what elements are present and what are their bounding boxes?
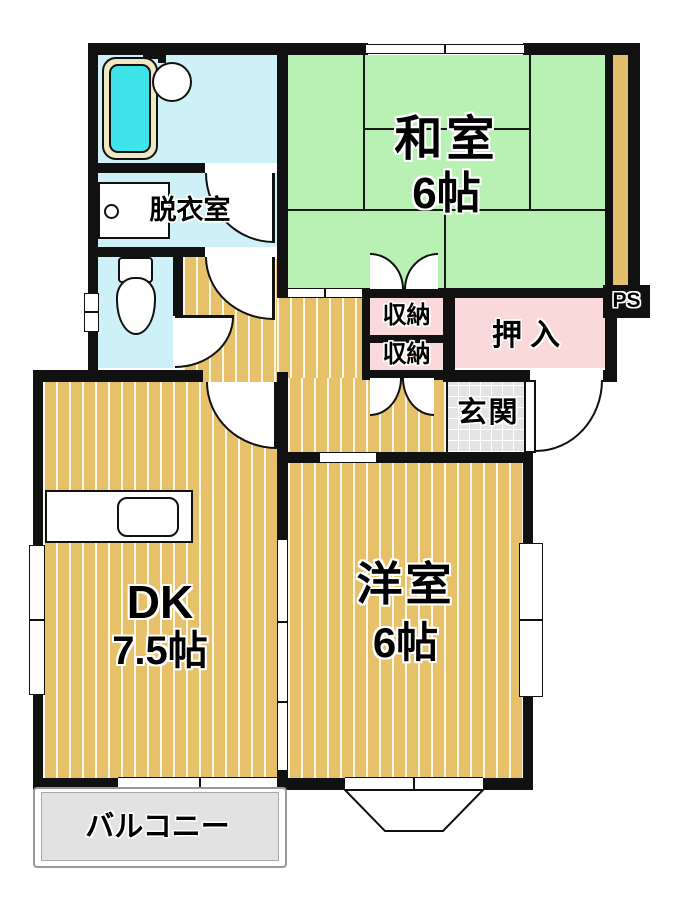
- wall: [33, 370, 203, 382]
- pipe-space-box: PS: [603, 285, 650, 318]
- faucet-icon: [143, 51, 159, 59]
- wall: [375, 452, 533, 463]
- dressing-room-label: 脱衣室: [115, 196, 265, 225]
- dk-size-label: 7.5帖: [43, 630, 277, 673]
- wall: [277, 372, 288, 540]
- window-mullion: [444, 44, 446, 54]
- kitchen-sink-icon: [117, 497, 179, 537]
- wall: [628, 43, 640, 285]
- sliding-door-tick: [277, 701, 288, 703]
- youshitsu-label: 洋室: [288, 560, 523, 610]
- washitsu-size-label: 6帖: [288, 170, 605, 218]
- faucet-icon: [158, 49, 166, 63]
- bathtub-water: [109, 64, 151, 153]
- wall: [88, 332, 98, 372]
- sliding-door-dk-youshitsu: [277, 540, 288, 770]
- door-leaf: [175, 315, 234, 318]
- wall: [277, 43, 288, 298]
- door-threshold: [205, 163, 277, 173]
- wall: [33, 695, 43, 788]
- wall: [603, 370, 617, 382]
- bathtub-icon: [102, 57, 158, 160]
- closet-lower-label: 収納: [362, 342, 451, 368]
- wall: [362, 288, 605, 298]
- window-mullion: [84, 311, 99, 313]
- wall: [523, 697, 533, 790]
- floor-plan: PS 和室 6帖 洋室 6帖 DK 7.5帖 脱衣室 押入 収納 収納 玄関 バ…: [0, 0, 675, 909]
- wall: [605, 318, 617, 370]
- genkan-label: 玄関: [441, 398, 536, 429]
- wall: [288, 452, 320, 463]
- wall: [98, 163, 205, 173]
- wall: [173, 248, 183, 316]
- tatami-line: [444, 210, 446, 288]
- hallway-floor: [277, 292, 362, 378]
- door-leaf: [272, 257, 275, 320]
- closet-upper-label: 収納: [362, 303, 451, 329]
- balcony-label: バルコニー: [45, 812, 270, 843]
- sliding-door-tick: [277, 621, 288, 623]
- front-door-arc: [536, 380, 603, 452]
- oshiire-label: 押入: [455, 320, 605, 352]
- door-leaf: [274, 382, 277, 449]
- door-leaf: [272, 173, 275, 243]
- wall: [523, 43, 640, 55]
- wall: [88, 247, 205, 257]
- wall: [33, 372, 43, 545]
- pipe-space-duct: [613, 55, 628, 285]
- dk-label: DK: [43, 578, 277, 628]
- wall: [443, 370, 530, 382]
- sliding-door-hall-youshitsu: [320, 452, 376, 463]
- sliding-door-tick: [324, 288, 326, 298]
- wall: [88, 43, 368, 55]
- wall: [605, 55, 613, 288]
- pipe-space-label: PS: [612, 290, 640, 313]
- youshitsu-size-label: 6帖: [288, 620, 523, 665]
- wall: [523, 452, 533, 543]
- bay-window: [335, 780, 495, 840]
- washitsu-label: 和室: [288, 114, 605, 166]
- washbasin-icon: [152, 62, 192, 102]
